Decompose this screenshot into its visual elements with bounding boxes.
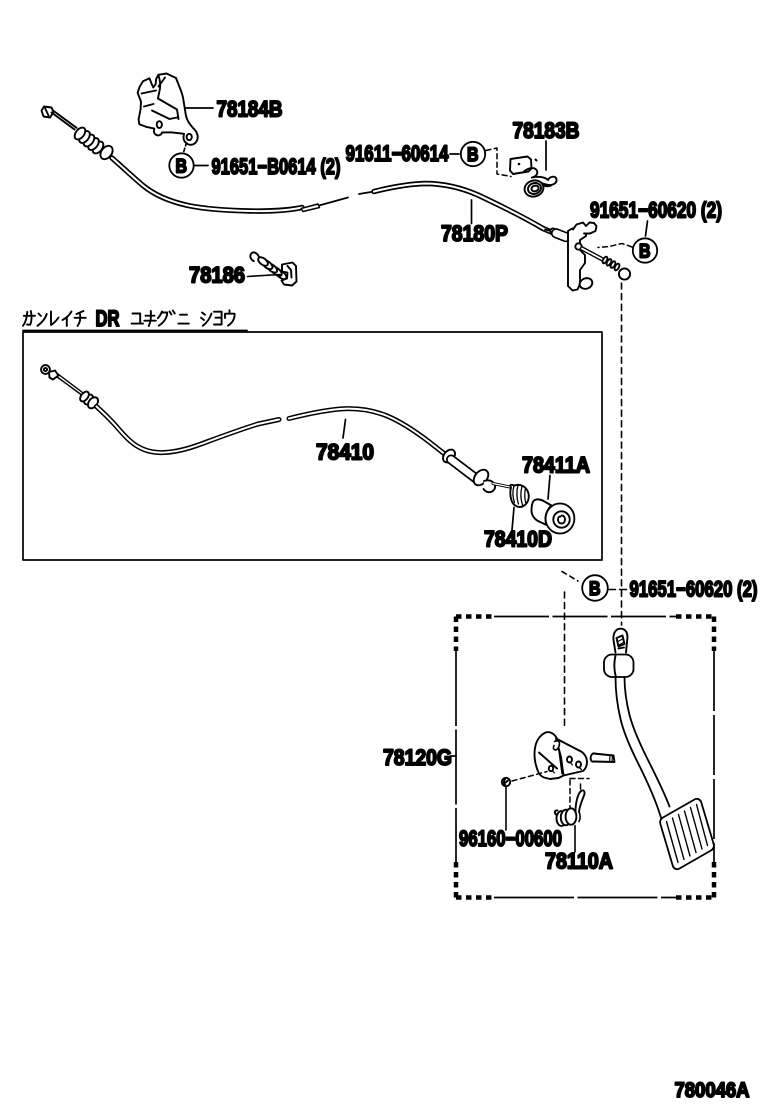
svg-text:DR: DR xyxy=(96,306,120,331)
svg-text:96160−00600: 96160−00600 xyxy=(459,826,562,851)
svg-text:78120G: 78120G xyxy=(383,745,452,770)
svg-text:91651−B0614 (2): 91651−B0614 (2) xyxy=(212,154,341,179)
svg-text:91651−60620 (2): 91651−60620 (2) xyxy=(590,198,722,223)
svg-text:78186: 78186 xyxy=(189,263,245,288)
svg-text:78180P: 78180P xyxy=(441,221,508,246)
svg-text:78410D: 78410D xyxy=(484,527,552,552)
svg-text:78411A: 78411A xyxy=(522,453,590,478)
svg-text:78110A: 78110A xyxy=(545,849,613,874)
svg-text:B: B xyxy=(639,242,651,263)
svg-text:780046A: 780046A xyxy=(675,1079,750,1102)
svg-text:78410: 78410 xyxy=(316,440,374,465)
svg-text:B: B xyxy=(467,145,479,166)
svg-text:B: B xyxy=(589,579,601,600)
svg-text:78184B: 78184B xyxy=(217,97,283,122)
svg-text:91651−60620 (2): 91651−60620 (2) xyxy=(630,577,758,602)
svg-text:91611−60614: 91611−60614 xyxy=(346,141,450,166)
svg-text:78183B: 78183B xyxy=(513,118,580,143)
svg-text:B: B xyxy=(176,157,188,178)
